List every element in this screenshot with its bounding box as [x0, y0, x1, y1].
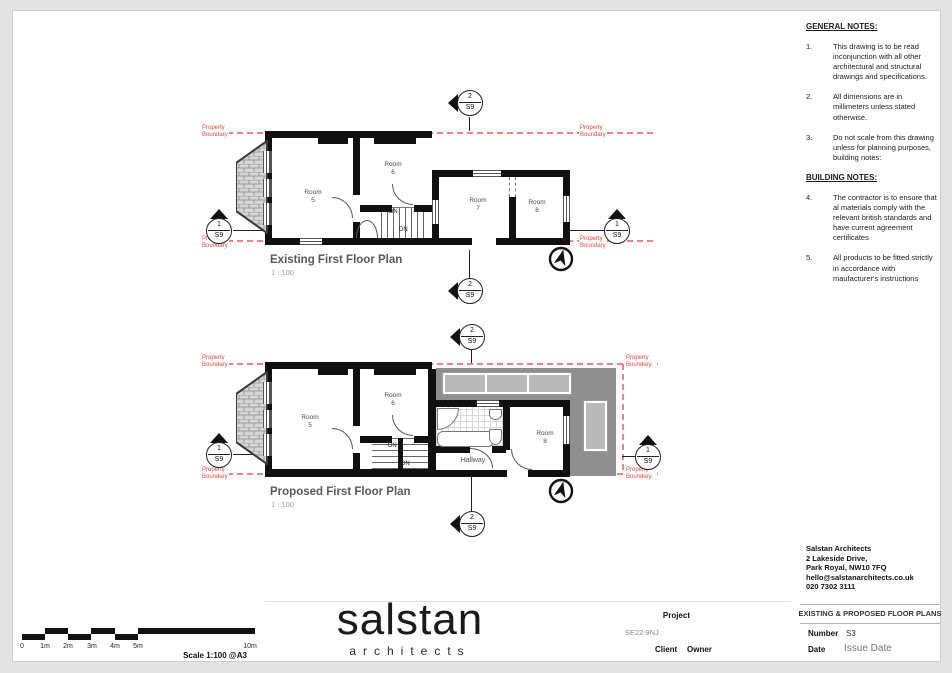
section-line — [570, 230, 604, 231]
toilet — [489, 429, 502, 445]
door-opening — [472, 238, 496, 245]
firm-email: hello@salstanarchitects.co.uk — [806, 573, 914, 583]
scale-bar-segment — [68, 634, 91, 640]
section-line — [469, 117, 470, 131]
room-label: Room5 — [290, 414, 330, 430]
note-item: 1.This drawing is to be read inconjuncti… — [806, 42, 939, 83]
bay-window — [263, 151, 272, 173]
plan-scale: 1 : 100 — [271, 500, 294, 509]
firm-phone: 020 7302 3111 — [806, 582, 914, 592]
wall-segment — [360, 205, 392, 212]
room-label: Room7 — [458, 197, 498, 213]
plan-title: Existing First Floor Plan — [270, 254, 402, 266]
scale-tick: 10m — [243, 643, 257, 650]
hallway-label: Hallway — [448, 457, 498, 465]
section-line — [469, 250, 470, 278]
scale-caption: Scale 1:100 @A3 — [150, 651, 280, 660]
door-opening — [507, 470, 528, 477]
bay-window — [263, 179, 272, 197]
wall-segment — [428, 470, 570, 477]
wall-segment — [503, 400, 510, 450]
section-line — [471, 477, 472, 511]
scale-bar-segment — [22, 634, 45, 640]
bay-window — [263, 203, 272, 225]
plan-scale: 1 : 100 — [271, 268, 294, 277]
property-boundary-label: PropertyBoundary — [625, 355, 653, 369]
note-item: 4.The contractor is to ensure that al ma… — [806, 193, 939, 244]
room-label: Room6 — [373, 161, 413, 177]
rooflight-pane — [445, 375, 485, 392]
logo: salstan architects — [325, 597, 495, 658]
rooflight-pane — [529, 375, 569, 392]
window — [432, 200, 439, 224]
note-item: 3.Do not scale from this drawing unless … — [806, 133, 939, 163]
window — [563, 196, 570, 222]
rooflight-pane — [586, 403, 605, 449]
sheet-title: EXISTING & PROPOSED FLOOR PLANS — [798, 609, 942, 618]
date-value: Issue Date — [844, 643, 892, 654]
wall-segment — [414, 205, 432, 212]
section-marker-1: 1S9 — [604, 218, 630, 244]
project-label: Project — [615, 611, 690, 620]
general-notes-heading: GENERAL NOTES: — [806, 22, 939, 33]
stair-direction-label: DN — [388, 443, 397, 449]
scale-tick: 2m — [63, 643, 73, 650]
window — [473, 170, 501, 177]
firm-name: Salstan Architects — [806, 544, 914, 554]
wall-segment — [432, 170, 570, 177]
date-label: Date — [808, 645, 825, 654]
chimney-breast — [318, 138, 348, 144]
wall-segment — [353, 369, 360, 426]
section-marker-1: 1S9 — [206, 218, 232, 244]
wall-segment — [432, 238, 570, 245]
scale-tick: 5m — [133, 643, 143, 650]
scale-tick: 1m — [40, 643, 50, 650]
north-arrow-icon — [548, 478, 574, 504]
logo-subtitle: architects — [325, 644, 495, 658]
building-notes-heading: BUILDING NOTES: — [806, 173, 939, 184]
notes-panel: GENERAL NOTES: 1.This drawing is to be r… — [806, 22, 939, 294]
logo-name: salstan — [325, 597, 495, 643]
section-line — [622, 456, 635, 457]
drawing-sheet-page: Room5 Room6 Room7 Room8 DN DN 2S9 2S9 1S… — [0, 0, 952, 673]
chimney-breast — [374, 138, 416, 144]
wall-segment — [265, 469, 432, 477]
wall-opening-dashed — [509, 177, 516, 197]
section-marker-1: 1S9 — [635, 444, 661, 470]
window — [300, 238, 322, 245]
room-label: Room5 — [293, 189, 333, 205]
wall-segment — [265, 238, 432, 245]
wall-segment — [353, 453, 360, 470]
section-marker-1: 1S9 — [206, 442, 232, 468]
scale-tick: 4m — [110, 643, 120, 650]
chimney-breast — [374, 369, 416, 375]
bay-window — [263, 410, 272, 428]
section-marker-2: 2S9 — [459, 324, 485, 350]
bay-window — [263, 382, 272, 404]
section-marker-2: 2S9 — [459, 511, 485, 537]
divider-line — [800, 604, 940, 605]
bay-window — [263, 434, 272, 456]
firm-address: Salstan Architects 2 Lakeside Drive, Par… — [806, 544, 914, 592]
scale-tick: 0 — [20, 643, 24, 650]
scale-bar-segment — [91, 628, 115, 634]
property-boundary-line — [622, 364, 624, 474]
divider-line — [800, 623, 940, 624]
sink — [489, 409, 502, 420]
room-label: Room8 — [525, 430, 565, 446]
section-marker-2: 2S9 — [457, 278, 483, 304]
scale-tick: 3m — [87, 643, 97, 650]
wall-segment — [509, 197, 516, 245]
room-label: Room8 — [517, 199, 557, 215]
firm-address-line: Park Royal, NW10 7FQ — [806, 563, 914, 573]
wall-segment — [428, 369, 436, 470]
number-label: Number — [808, 629, 838, 638]
firm-address-line: 2 Lakeside Drive, — [806, 554, 914, 564]
rooflight-strip — [443, 373, 571, 394]
property-boundary-label: PropertyBoundary — [579, 125, 607, 139]
bathtub — [437, 431, 494, 447]
wall-segment — [428, 400, 570, 407]
stair-direction-label: DN — [399, 227, 408, 233]
window — [477, 400, 499, 407]
stair-direction-label: DN — [401, 461, 410, 467]
property-boundary-label: PropertyBoundary — [579, 236, 607, 250]
rooflight — [584, 401, 607, 451]
wall-segment — [265, 362, 432, 369]
client-value: Owner — [687, 645, 712, 654]
scale-bar-segment — [45, 628, 68, 634]
chimney-breast — [318, 369, 348, 375]
north-arrow-icon — [548, 246, 574, 272]
stair-direction-label: DN — [389, 209, 398, 215]
rooflight-pane — [487, 375, 527, 392]
client-label: Client — [655, 645, 677, 654]
note-item: 2.All dimensions are in millimeters unle… — [806, 92, 939, 122]
section-line — [471, 350, 472, 363]
wall-segment — [360, 436, 392, 443]
plan-title: Proposed First Floor Plan — [270, 486, 411, 498]
scale-bar-segment — [138, 628, 255, 634]
property-boundary-label: PropertyBoundary — [201, 125, 229, 139]
wall-segment — [436, 446, 470, 453]
property-boundary-label: PropertyBoundary — [201, 467, 229, 481]
project-value: SE22 9NJ — [625, 628, 659, 637]
wall-segment — [265, 131, 432, 138]
property-boundary-label: PropertyBoundary — [201, 355, 229, 369]
scale-bar-segment — [115, 634, 138, 640]
room-label: Room6 — [373, 392, 413, 408]
wall-segment — [353, 138, 360, 195]
section-marker-2: 2S9 — [457, 90, 483, 116]
number-value: S3 — [846, 629, 856, 638]
note-item: 5.All products to be fitted strictly in … — [806, 253, 939, 283]
